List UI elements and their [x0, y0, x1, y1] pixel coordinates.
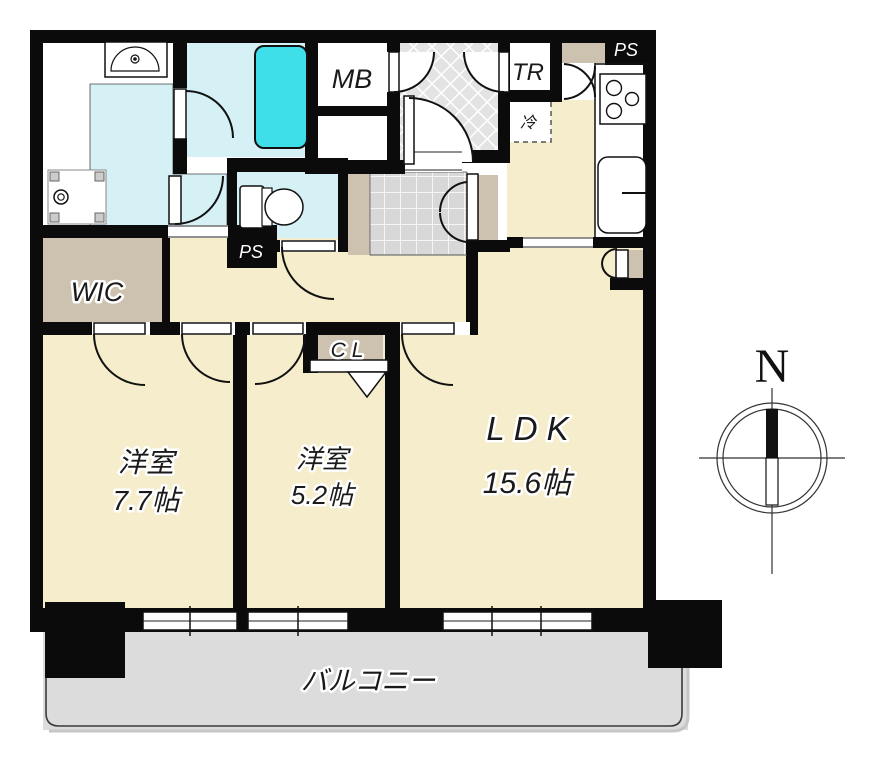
wall-segment — [387, 30, 400, 52]
pipe-space-kitchen-label: PS — [614, 40, 638, 60]
washer-drain — [54, 190, 68, 204]
toilet-door-leaf — [282, 241, 335, 251]
wall-segment — [318, 106, 387, 116]
washroom-door-opening — [168, 225, 228, 238]
wall-segment — [305, 160, 405, 174]
wall-segment — [173, 138, 187, 174]
meter-box-door-leaf — [389, 52, 399, 92]
toilet-tank — [240, 186, 264, 228]
stove-burner — [607, 104, 622, 119]
bedroom1-name: 洋室 — [118, 447, 178, 478]
bedroom2-area: 5.2帖 — [291, 480, 357, 510]
wall-segment — [466, 240, 478, 332]
wall-segment — [162, 235, 170, 322]
wall-segment — [466, 240, 510, 252]
wall-segment — [42, 225, 170, 238]
wall-segment — [387, 92, 400, 162]
stove-burner — [626, 93, 639, 106]
wic-door-leaf — [94, 323, 145, 334]
entrance-cabinet-right — [478, 175, 498, 243]
balcony-label: バルコニー — [301, 666, 436, 696]
wall-segment — [233, 322, 247, 610]
floor-plan: N 洋室 7.7帖 洋室 5.2帖 LDK 15.6帖 WIC CL MB TR… — [0, 0, 882, 764]
pipe-space-hall-label: PS — [239, 242, 263, 262]
bedroom2-name: 洋室 — [296, 444, 352, 474]
bedroom1-area: 7.7帖 — [113, 485, 184, 516]
ldk-closet-leaf — [616, 250, 628, 278]
wall-segment — [593, 237, 648, 248]
bathroom-door-leaf — [174, 89, 186, 139]
kitchen-sink — [598, 157, 646, 233]
compass-needle-south — [766, 458, 778, 505]
stove-burner — [607, 81, 622, 96]
trunk-room-label: TR — [512, 59, 544, 86]
entrance-cabinet-left — [348, 172, 370, 255]
north-label: N — [755, 340, 790, 393]
front-door-leaf — [404, 96, 414, 164]
vanity-faucet-dot — [133, 57, 137, 61]
washer-pan-pad — [50, 213, 59, 222]
wic-label: WIC — [71, 277, 124, 307]
pillar-right — [648, 600, 722, 668]
wall-segment — [227, 170, 237, 228]
wall-segment — [610, 278, 648, 290]
bedroom2-door-leaf — [253, 323, 303, 334]
ldk-area: 15.6帖 — [483, 467, 575, 500]
compass-needle-north — [766, 409, 778, 458]
washer-pan-pad — [95, 172, 104, 181]
toilet-bowl — [265, 189, 303, 225]
floor-plan-drawing: N 洋室 7.7帖 洋室 5.2帖 LDK 15.6帖 WIC CL MB TR… — [0, 0, 882, 764]
ldk-door-leaf — [402, 323, 454, 334]
entrance-bifold-leaf — [467, 174, 478, 240]
kitchen-ldk-opening — [523, 237, 593, 248]
closet-label: CL — [331, 339, 370, 362]
refrigerator-label: 冷 — [520, 114, 538, 132]
washer-pan-pad — [50, 172, 59, 181]
bedroom1-door-leaf — [182, 323, 231, 334]
storage-room — [318, 116, 387, 160]
trunk-room-door-leaf — [499, 52, 509, 92]
ldk-name: LDK — [486, 410, 577, 447]
kitchen-cabinet — [562, 43, 605, 63]
washer-pan-pad — [95, 213, 104, 222]
entrance-tile — [370, 172, 467, 255]
wall-segment — [30, 30, 43, 615]
bathtub — [255, 46, 307, 148]
washroom-door-leaf — [169, 176, 181, 224]
wall-segment — [173, 30, 187, 88]
meter-box-label: MB — [332, 64, 373, 94]
pillar-left — [45, 602, 125, 678]
